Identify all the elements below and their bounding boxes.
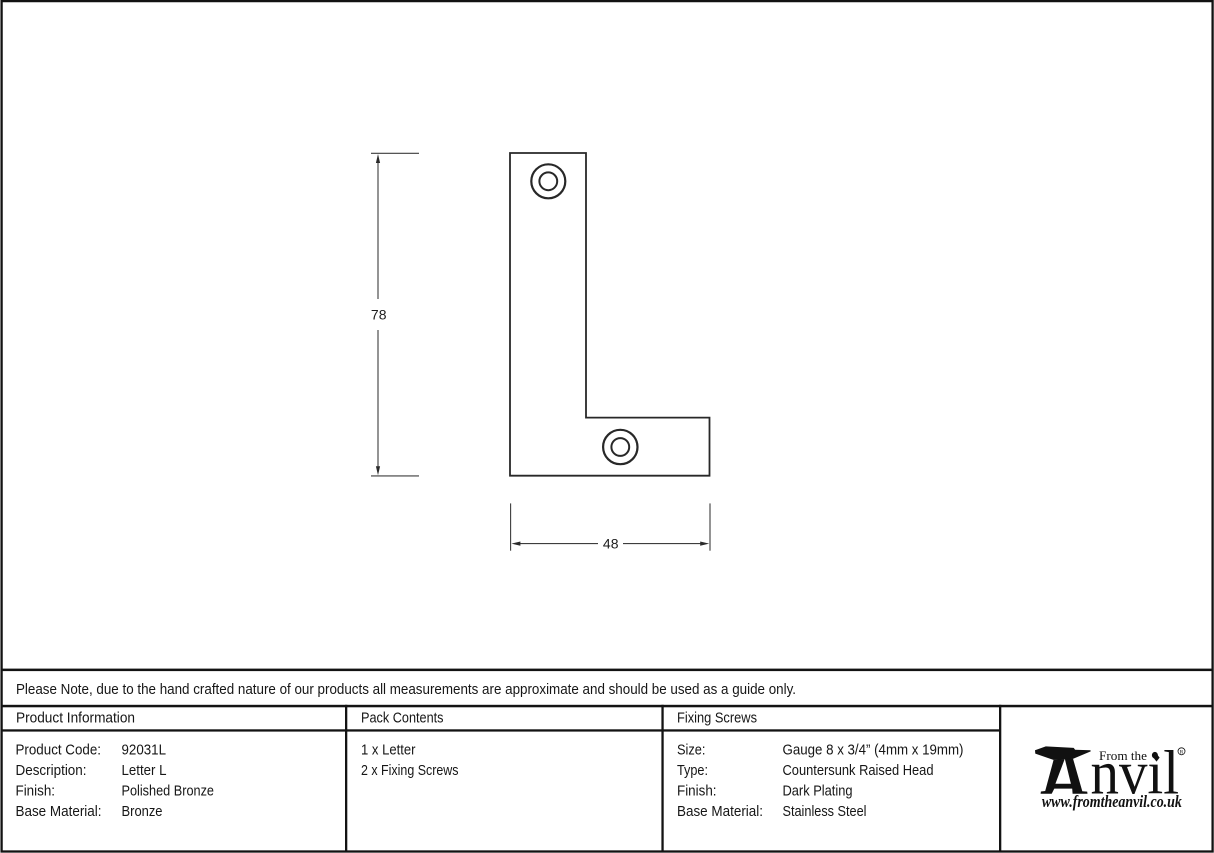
svg-text:Description:: Description: bbox=[16, 762, 87, 779]
svg-text:Product Information: Product Information bbox=[16, 710, 135, 727]
svg-text:R: R bbox=[1180, 749, 1184, 755]
svg-text:Stainless Steel: Stainless Steel bbox=[783, 803, 867, 820]
svg-text:Product Code:: Product Code: bbox=[16, 742, 102, 759]
svg-text:Countersunk Raised Head: Countersunk Raised Head bbox=[783, 762, 934, 779]
svg-text:Polished Bronze: Polished Bronze bbox=[122, 783, 215, 800]
svg-text:Finish:: Finish: bbox=[677, 783, 717, 800]
svg-text:Finish:: Finish: bbox=[16, 783, 56, 800]
svg-text:Letter L: Letter L bbox=[122, 762, 167, 779]
svg-text:Base Material:: Base Material: bbox=[677, 803, 763, 820]
svg-text:78: 78 bbox=[371, 307, 387, 323]
svg-text:Size:: Size: bbox=[677, 742, 706, 759]
svg-text:92031L: 92031L bbox=[122, 742, 167, 759]
svg-text:Gauge 8 x 3/4” (4mm x 19mm): Gauge 8 x 3/4” (4mm x 19mm) bbox=[783, 742, 964, 759]
svg-text:Pack Contents: Pack Contents bbox=[361, 710, 444, 727]
svg-text:Fixing Screws: Fixing Screws bbox=[677, 710, 757, 727]
svg-text:1 x Letter: 1 x Letter bbox=[361, 742, 416, 759]
svg-text:Type:: Type: bbox=[677, 762, 708, 779]
svg-text:Bronze: Bronze bbox=[122, 803, 163, 820]
svg-text:Base Material:: Base Material: bbox=[16, 803, 102, 820]
svg-text:2 x Fixing Screws: 2 x Fixing Screws bbox=[361, 762, 459, 779]
svg-text:Dark Plating: Dark Plating bbox=[783, 783, 853, 800]
svg-text:www.fromtheanvil.co.uk: www.fromtheanvil.co.uk bbox=[1042, 792, 1182, 811]
svg-text:48: 48 bbox=[603, 536, 619, 552]
svg-text:Please Note, due to the hand c: Please Note, due to the hand crafted nat… bbox=[16, 681, 796, 698]
